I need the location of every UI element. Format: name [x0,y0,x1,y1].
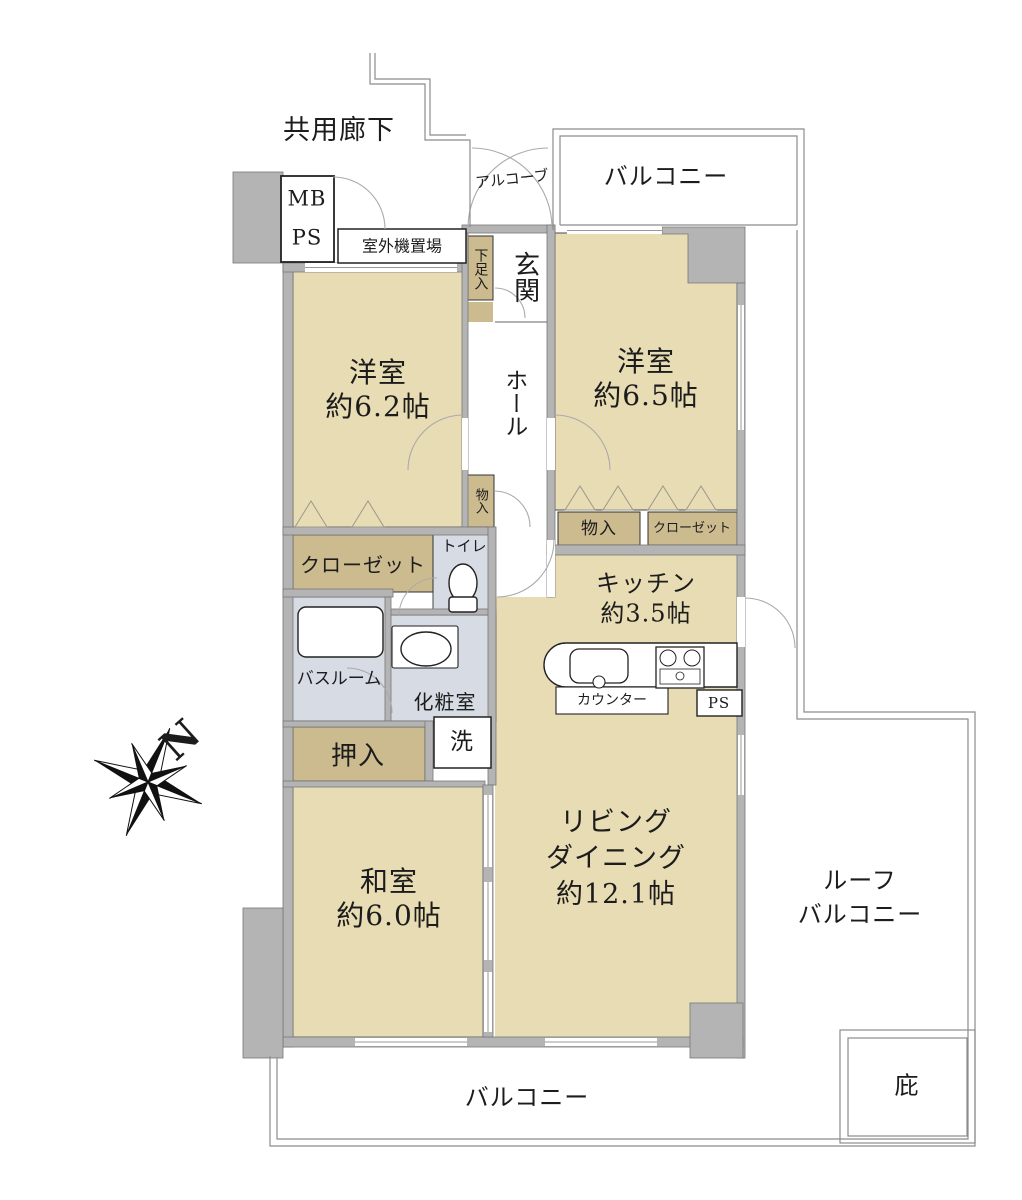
wall-entrance-top [462,225,555,233]
label-western1-size: 約6.2帖 [325,390,431,424]
wall-powder-top [390,609,496,615]
label-entrance: 玄関 [508,251,539,303]
label-shoe-box: 下足入 [472,248,489,290]
arc-roof-balcony-door [745,598,795,648]
label-hall: ホール [499,369,527,438]
wall-kitchen-top [547,545,745,555]
label-oshiire: 押入 [331,741,385,772]
compass-rose [71,705,226,860]
wall-bath-bottom [283,721,433,727]
floorplan-canvas: 共用廊下 MB PS 室外機置場 アルコーブ バルコニー 下足入 玄関 ホール … [0,0,1022,1200]
wall-oshiire-right [425,721,433,781]
wall-entrance-left [462,233,468,528]
label-ps-shaft: PS [708,694,730,712]
pillar-bottom-left [243,908,283,1058]
label-common-corridor: 共用廊下 [283,115,395,147]
label-balcony-top: バルコニー [604,163,729,192]
label-hall-storage: 物入 [472,488,488,514]
sink-drain [593,676,605,688]
vanity-sink [401,632,451,666]
label-storage2: 物入 [581,519,617,539]
wall-bath-top [283,589,393,597]
arc-mbps-door [333,177,385,229]
label-balcony-bottom: バルコニー [465,1084,590,1113]
door-gap-western2 [547,418,555,470]
label-western2-size: 約6.5帖 [593,379,699,413]
toilet-tank [449,597,477,612]
label-ps-meter: PS [292,225,323,250]
wall-under-western1 [283,527,493,535]
stove [656,647,704,688]
label-kitchen-name: キッチン [596,570,696,599]
bathtub [298,607,383,657]
label-western1-name: 洋室 [349,356,407,390]
label-toilet: トイレ [441,537,486,555]
arc-hall-storage-door [494,491,530,527]
wall-japanese-top [283,781,485,787]
label-western2-name: 洋室 [617,345,675,379]
door-gap-western1 [462,418,468,470]
label-counter: カウンター [577,693,647,710]
label-mb: MB [288,186,327,211]
label-roof-balcony1: ルーフ [823,867,897,896]
label-living2: ダイニング [546,843,686,875]
label-closet2: クローゼット [653,521,731,537]
label-closet1: クローゼット [300,553,426,577]
label-laundry: 洗 [450,729,474,757]
label-eaves: 庇 [895,1072,920,1101]
shoe-box-step [468,302,493,322]
label-living3: 約12.1帖 [556,879,676,911]
label-living1: リビング [560,807,672,839]
wall-bath-right [385,597,391,721]
label-japanese-name: 和室 [360,865,418,899]
wall-bottom [283,1037,743,1047]
door-gap-kitchen-right [737,597,745,647]
label-roof-balcony2: バルコニー [798,901,923,930]
arc-living-door [497,540,554,597]
label-powder-room: 化粧室 [414,690,477,714]
wall-left [283,263,293,1047]
label-japanese-size: 約6.0帖 [336,899,442,933]
pillar-bottom-right [690,1003,743,1058]
label-kitchen-size: 約3.5帖 [600,600,691,629]
pillar-mbps [233,172,283,263]
label-bathroom: バスルーム [297,669,382,689]
label-outdoor-unit: 室外機置場 [362,236,442,255]
